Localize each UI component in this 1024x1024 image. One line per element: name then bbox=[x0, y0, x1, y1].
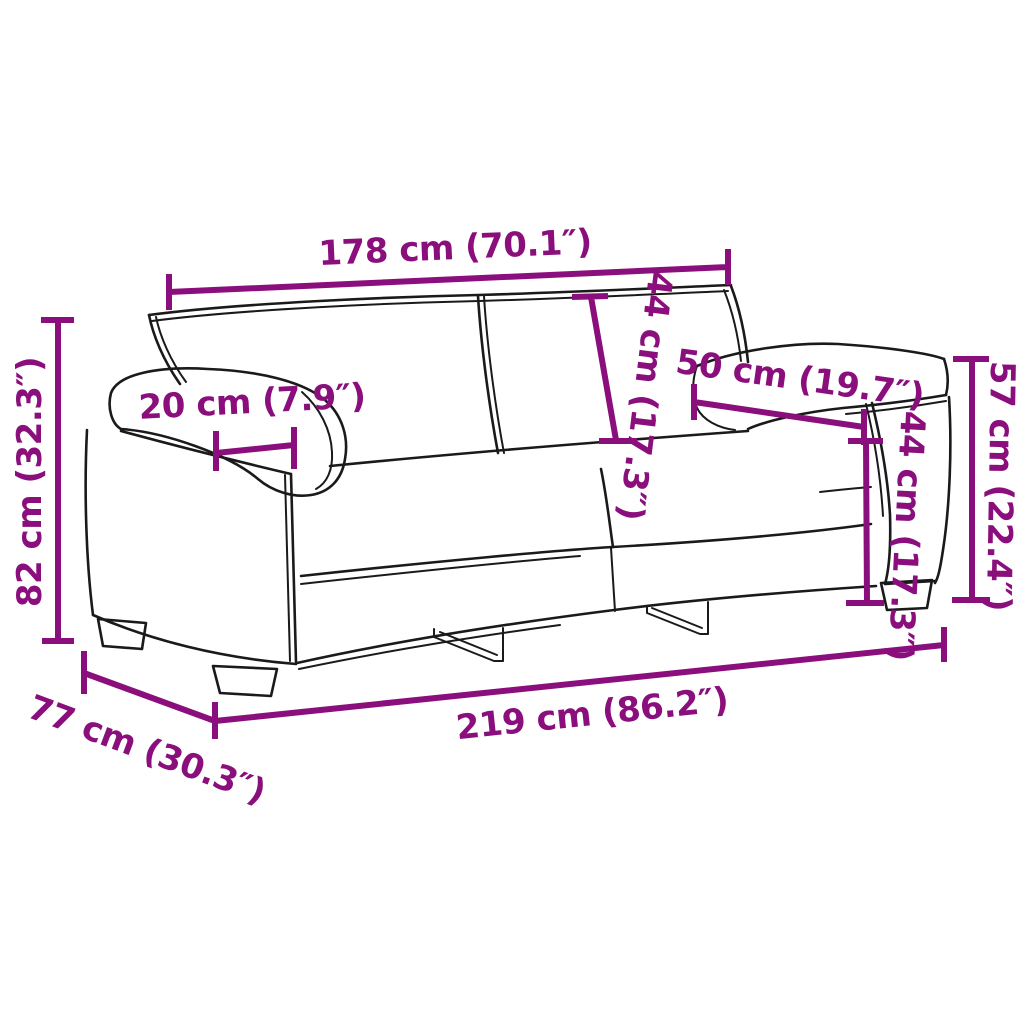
dim-overall-depth: 77 cm (30.3″) bbox=[22, 651, 270, 812]
sofa-drawing bbox=[86, 285, 951, 696]
rear-z-leg-left bbox=[434, 628, 503, 661]
dim-overall-width: 219 cm (86.2″) bbox=[215, 627, 944, 748]
base-bottom-edge bbox=[297, 586, 876, 663]
dim-overall-height-label: 82 cm (32.3″) bbox=[10, 357, 50, 607]
left-arm-front-right-edge-inner bbox=[285, 475, 290, 661]
base-front-seam bbox=[611, 548, 615, 611]
dim-overall-height: 82 cm (32.3″) bbox=[10, 320, 74, 641]
dim-armrest-depth: 50 cm (19.7″) bbox=[673, 342, 926, 445]
dimension-annotations: 178 cm (70.1″) 44 cm (17.3″) 50 cm (19.7… bbox=[10, 222, 1022, 812]
dim-armrest-width-label: 20 cm (7.9″) bbox=[138, 376, 367, 428]
rear-z-leg-right bbox=[647, 602, 708, 634]
sofa-dimension-diagram: 178 cm (70.1″) 44 cm (17.3″) 50 cm (19.7… bbox=[0, 0, 1024, 1024]
dim-arm-height: 57 cm (22.4″) bbox=[952, 359, 1022, 611]
left-front-leg bbox=[213, 666, 277, 696]
left-arm-cushion-underline bbox=[121, 431, 291, 474]
right-arm-outer-edge bbox=[935, 397, 950, 583]
back-cushion-seam bbox=[478, 296, 498, 453]
left-arm-front-right-edge bbox=[291, 474, 296, 662]
dim-back-height: 44 cm (17.3″) bbox=[572, 269, 680, 522]
dim-arm-height-label: 57 cm (22.4″) bbox=[978, 361, 1022, 612]
seat-back-edge bbox=[330, 431, 748, 466]
diagram-canvas: 178 cm (70.1″) 44 cm (17.3″) 50 cm (19.7… bbox=[0, 0, 1024, 1024]
right-arm-cushion-end bbox=[944, 359, 948, 395]
dim-back-height-label: 44 cm (17.3″) bbox=[610, 269, 680, 522]
dim-seat-height-label: 44 cm (17.3″) bbox=[879, 410, 932, 662]
dim-overall-depth-label: 77 cm (30.3″) bbox=[22, 687, 270, 812]
backrest-left-edge bbox=[149, 315, 180, 384]
dim-seat-height: 44 cm (17.3″) bbox=[846, 410, 933, 662]
seat-base-seam bbox=[301, 524, 871, 576]
base-bottom-edge-inner bbox=[299, 625, 560, 669]
dim-back-width-label: 178 cm (70.1″) bbox=[318, 222, 593, 274]
left-arm-outer-edge bbox=[86, 430, 93, 615]
